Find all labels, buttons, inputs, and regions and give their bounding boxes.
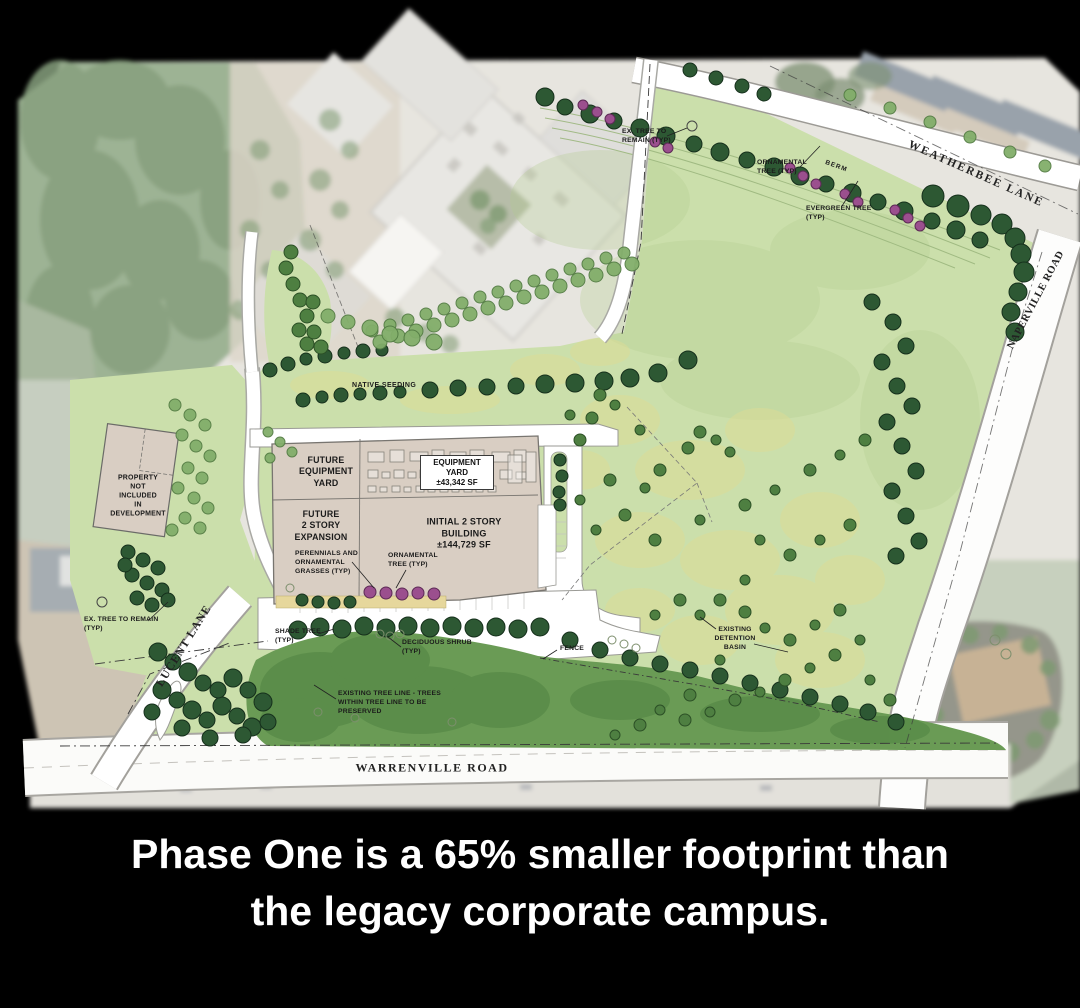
label-evergreen-tree: EVERGREEN TREE (TYP)	[806, 205, 872, 223]
tree-symbol	[421, 619, 439, 637]
tree-symbol	[399, 617, 417, 635]
tree-symbol	[426, 334, 442, 350]
tree-symbol	[492, 286, 504, 298]
tree-symbol	[169, 399, 181, 411]
tree-symbol	[770, 485, 780, 495]
tree-symbol	[865, 675, 875, 685]
tree-symbol	[517, 290, 531, 304]
tree-symbol	[811, 179, 821, 189]
tree-symbol	[344, 596, 356, 608]
tree-symbol	[859, 434, 871, 446]
tree-symbol	[240, 682, 256, 698]
tree-symbol	[711, 143, 729, 161]
tree-symbol	[195, 675, 211, 691]
tree-symbol	[755, 687, 765, 697]
tree-symbol	[618, 247, 630, 259]
tree-symbol	[674, 594, 686, 606]
tree-symbol	[835, 450, 845, 460]
tree-symbol	[508, 378, 524, 394]
tree-symbol	[591, 525, 601, 535]
tree-symbol	[554, 454, 566, 466]
tree-symbol	[600, 252, 612, 264]
tree-symbol	[536, 375, 554, 393]
tree-symbol	[607, 262, 621, 276]
tree-symbol	[144, 704, 160, 720]
tree-symbol	[179, 663, 197, 681]
tree-symbol	[784, 634, 796, 646]
tree-symbol	[293, 293, 307, 307]
tree-symbol	[362, 320, 378, 336]
tree-symbol	[284, 245, 298, 259]
tree-symbol	[884, 102, 896, 114]
tree-symbol	[903, 213, 913, 223]
tree-symbol	[481, 301, 495, 315]
tree-symbol	[610, 730, 620, 740]
tree-symbol	[292, 323, 306, 337]
label-ornamental-tree-ne: ORNAMENTAL TREE (TYP)	[757, 159, 807, 177]
tree-symbol	[575, 495, 585, 505]
tree-symbol	[760, 623, 770, 633]
tree-symbol	[286, 277, 300, 291]
tree-symbol	[911, 533, 927, 549]
tree-symbol	[640, 483, 650, 493]
tree-symbol	[229, 708, 245, 724]
tree-symbol	[604, 474, 616, 486]
tree-symbol	[145, 598, 159, 612]
tree-symbol	[166, 524, 178, 536]
tree-symbol	[564, 263, 576, 275]
tree-symbol	[1002, 303, 1020, 321]
tree-symbol	[528, 275, 540, 287]
tree-symbol	[810, 620, 820, 630]
tree-symbol	[684, 689, 696, 701]
tree-symbol	[610, 400, 620, 410]
tree-symbol	[705, 707, 715, 717]
label-future-equipment-yard: FUTURE EQUIPMENT YARD	[299, 455, 353, 489]
tree-symbol	[183, 701, 201, 719]
tree-symbol	[510, 280, 522, 292]
tree-symbol	[679, 351, 697, 369]
label-native-seeding: NATIVE SEEDING	[352, 381, 416, 390]
tree-symbol	[333, 620, 351, 638]
tree-symbol	[531, 618, 549, 636]
tree-symbol	[784, 549, 796, 561]
tree-symbol	[619, 509, 631, 521]
tree-symbol	[265, 453, 275, 463]
tree-symbol	[574, 434, 586, 446]
tree-symbol	[924, 116, 936, 128]
tree-symbol	[894, 438, 910, 454]
tree-symbol	[121, 545, 135, 559]
tree-symbol	[546, 269, 558, 281]
tree-symbol	[566, 374, 584, 392]
site-plan-graphic: EX. TREE TO REMAIN (TYP) ORNAMENTAL TREE…	[0, 0, 1080, 1008]
tree-symbol	[307, 325, 321, 339]
label-existing-tree-line: EXISTING TREE LINE - TREES WITHIN TREE L…	[338, 690, 441, 716]
tree-symbol	[595, 372, 613, 390]
label-ex-tree-remain-top: EX. TREE TO REMAIN (TYP)	[622, 128, 671, 146]
tree-symbol	[908, 463, 924, 479]
tree-symbol	[445, 313, 459, 327]
tree-symbol	[465, 619, 483, 637]
tree-symbol	[296, 594, 308, 606]
tree-symbol	[1004, 146, 1016, 158]
tree-symbol	[202, 502, 214, 514]
tree-symbol	[714, 594, 726, 606]
tree-symbol	[964, 131, 976, 143]
label-ex-tree-remain-sw: EX. TREE TO REMAIN (TYP)	[84, 616, 158, 634]
tree-symbol	[428, 588, 440, 600]
tree-symbol	[635, 425, 645, 435]
tree-symbol	[779, 674, 791, 686]
tree-symbol	[683, 63, 697, 77]
tree-symbol	[314, 340, 328, 354]
tree-symbol	[578, 100, 588, 110]
tree-symbol	[888, 714, 904, 730]
tree-symbol	[947, 195, 969, 217]
label-detention-basin: EXISTING DETENTION BASIN	[714, 626, 755, 652]
tree-symbol	[1011, 244, 1031, 264]
tree-symbol	[556, 470, 568, 482]
tree-symbol	[805, 663, 815, 673]
tree-symbol	[402, 314, 414, 326]
tree-symbol	[456, 297, 468, 309]
tree-symbol	[592, 107, 602, 117]
tree-symbol	[844, 519, 856, 531]
tree-symbol	[312, 596, 324, 608]
tree-symbol	[682, 662, 698, 678]
tree-symbol	[739, 606, 751, 618]
tree-symbol	[915, 221, 925, 231]
tree-symbol	[176, 429, 188, 441]
tree-symbol	[213, 697, 231, 715]
tree-symbol	[118, 558, 132, 572]
tree-symbol	[594, 389, 606, 401]
tree-symbol	[802, 689, 818, 705]
tree-symbol	[136, 553, 150, 567]
tree-symbol	[860, 704, 876, 720]
tree-symbol	[686, 136, 702, 152]
tree-symbol	[554, 499, 566, 511]
tree-symbol	[553, 279, 567, 293]
tree-symbol	[589, 268, 603, 282]
tree-symbol	[151, 561, 165, 575]
tree-symbol	[565, 410, 575, 420]
tree-symbol	[655, 705, 665, 715]
tree-symbol	[898, 508, 914, 524]
tree-symbol	[260, 714, 276, 730]
tree-symbol	[199, 419, 211, 431]
tree-symbol	[199, 712, 215, 728]
tree-symbol	[279, 261, 293, 275]
tree-symbol	[649, 364, 667, 382]
tree-symbol	[140, 576, 154, 590]
tree-symbol	[888, 548, 904, 564]
tree-symbol	[1014, 262, 1034, 282]
tree-symbol	[711, 435, 721, 445]
tree-symbol	[356, 344, 370, 358]
label-perennials: PERENNIALS AND ORNAMENTAL GRASSES (TYP)	[295, 550, 358, 576]
tree-symbol	[487, 618, 505, 636]
tree-symbol	[815, 535, 825, 545]
tree-symbol	[890, 205, 900, 215]
tree-symbol	[634, 719, 646, 731]
tree-symbol	[739, 152, 755, 168]
road-label-warrenville: WARRENVILLE ROAD	[355, 761, 508, 776]
tree-symbol	[898, 338, 914, 354]
tree-symbol	[729, 694, 741, 706]
tree-symbol	[341, 315, 355, 329]
tree-symbol	[682, 442, 694, 454]
tree-symbol	[420, 308, 432, 320]
tree-symbol	[450, 380, 466, 396]
tree-symbol	[396, 588, 408, 600]
tree-symbol	[1009, 283, 1027, 301]
tree-symbol	[355, 617, 373, 635]
tree-symbol	[742, 675, 758, 691]
tree-symbol	[553, 486, 565, 498]
tree-symbol	[947, 221, 965, 239]
tree-symbol	[740, 575, 750, 585]
tree-symbol	[338, 347, 350, 359]
tree-symbol	[695, 610, 705, 620]
tree-symbol	[650, 610, 660, 620]
tree-symbol	[422, 382, 438, 398]
tree-symbol	[755, 535, 765, 545]
tree-symbol	[463, 307, 477, 321]
tree-symbol	[679, 714, 691, 726]
tree-symbol	[190, 440, 202, 452]
tree-symbol	[924, 213, 940, 229]
tree-symbol	[874, 354, 890, 370]
tree-symbol	[254, 693, 272, 711]
tree-symbol	[649, 534, 661, 546]
label-ornamental-tree-s: ORNAMENTAL TREE (TYP)	[388, 552, 438, 570]
tree-symbol	[275, 437, 285, 447]
tree-symbol	[709, 71, 723, 85]
label-fence: FENCE	[560, 645, 584, 654]
tree-symbol	[840, 189, 850, 199]
tree-symbol	[328, 597, 340, 609]
tree-symbol	[380, 587, 392, 599]
tree-symbol	[889, 378, 905, 394]
tree-symbol	[625, 257, 639, 271]
tree-symbol	[712, 668, 728, 684]
tree-symbol	[879, 414, 895, 430]
tree-symbol	[844, 89, 856, 101]
tree-symbol	[605, 114, 615, 124]
tree-symbol	[224, 669, 242, 687]
tree-symbol	[169, 692, 185, 708]
tree-symbol	[971, 205, 991, 225]
tree-symbol	[174, 720, 190, 736]
tree-symbol	[182, 462, 194, 474]
tree-symbol	[536, 88, 554, 106]
tree-symbol	[263, 427, 273, 437]
tree-symbol	[474, 291, 486, 303]
tree-symbol	[884, 694, 896, 706]
tree-symbol	[1039, 160, 1051, 172]
tree-symbol	[834, 604, 846, 616]
tree-symbol	[296, 393, 310, 407]
tree-symbol	[855, 635, 865, 645]
tree-symbol	[592, 642, 608, 658]
tree-symbol	[972, 232, 988, 248]
tree-symbol	[499, 296, 513, 310]
tree-symbol	[443, 617, 461, 635]
tree-symbol	[757, 87, 771, 101]
tree-symbol	[306, 295, 320, 309]
tree-symbol	[557, 99, 573, 115]
tree-symbol	[695, 515, 705, 525]
tree-symbol	[904, 398, 920, 414]
tree-symbol	[149, 643, 167, 661]
tree-symbol	[735, 79, 749, 93]
tree-symbol	[196, 472, 208, 484]
tree-symbol	[654, 464, 666, 476]
tree-symbol	[184, 409, 196, 421]
tree-symbol	[479, 379, 495, 395]
tree-symbol	[412, 587, 424, 599]
tree-symbol	[829, 649, 841, 661]
tree-symbol	[382, 326, 398, 342]
tree-symbol	[300, 309, 314, 323]
tree-symbol	[287, 447, 297, 457]
tree-symbol	[586, 412, 598, 424]
label-property-not-included: PROPERTY NOT INCLUDED IN DEVELOPMENT	[103, 473, 173, 518]
tree-symbol	[404, 330, 420, 346]
tree-symbol	[715, 655, 725, 665]
tree-symbol	[235, 727, 251, 743]
tree-symbol	[804, 464, 816, 476]
tree-symbol	[922, 185, 944, 207]
tree-symbol	[582, 258, 594, 270]
tree-symbol	[300, 353, 312, 365]
tree-symbol	[884, 483, 900, 499]
tree-symbol	[438, 303, 450, 315]
label-initial-building: INITIAL 2 STORY BUILDING ±144,729 SF	[427, 516, 502, 551]
tree-symbol	[204, 450, 216, 462]
label-shade-tree: SHADE TREE (TYP)	[275, 628, 321, 646]
tree-symbol	[334, 388, 348, 402]
tree-symbol	[263, 363, 277, 377]
caption-line-2: the legacy corporate campus.	[0, 883, 1080, 940]
tree-symbol	[621, 369, 639, 387]
caption: Phase One is a 65% smaller footprint tha…	[0, 826, 1080, 940]
tree-symbol	[179, 512, 191, 524]
tree-symbol	[172, 482, 184, 494]
tree-symbol	[194, 522, 206, 534]
tree-symbol	[652, 656, 668, 672]
tree-symbol	[571, 273, 585, 287]
tree-symbol	[864, 294, 880, 310]
label-equipment-yard: EQUIPMENT YARD ±43,342 SF	[420, 455, 494, 490]
tree-symbol	[188, 492, 200, 504]
label-deciduous-shrub: DECIDUOUS SHRUB (TYP)	[402, 639, 472, 657]
tree-symbol	[535, 285, 549, 299]
tree-symbol	[885, 314, 901, 330]
tree-symbol	[210, 682, 226, 698]
tree-symbol	[832, 696, 848, 712]
tree-symbol	[725, 447, 735, 457]
tree-symbol	[321, 309, 335, 323]
tree-symbol	[161, 593, 175, 607]
tree-symbol	[316, 391, 328, 403]
tree-symbol	[130, 591, 144, 605]
tree-symbol	[694, 426, 706, 438]
tree-symbol	[202, 730, 218, 746]
tree-symbol	[870, 194, 886, 210]
caption-line-1: Phase One is a 65% smaller footprint tha…	[0, 826, 1080, 883]
tree-symbol	[281, 357, 295, 371]
tree-symbol	[427, 318, 441, 332]
label-future-expansion: FUTURE 2 STORY EXPANSION	[295, 509, 348, 543]
tree-symbol	[739, 499, 751, 511]
tree-symbol	[509, 620, 527, 638]
